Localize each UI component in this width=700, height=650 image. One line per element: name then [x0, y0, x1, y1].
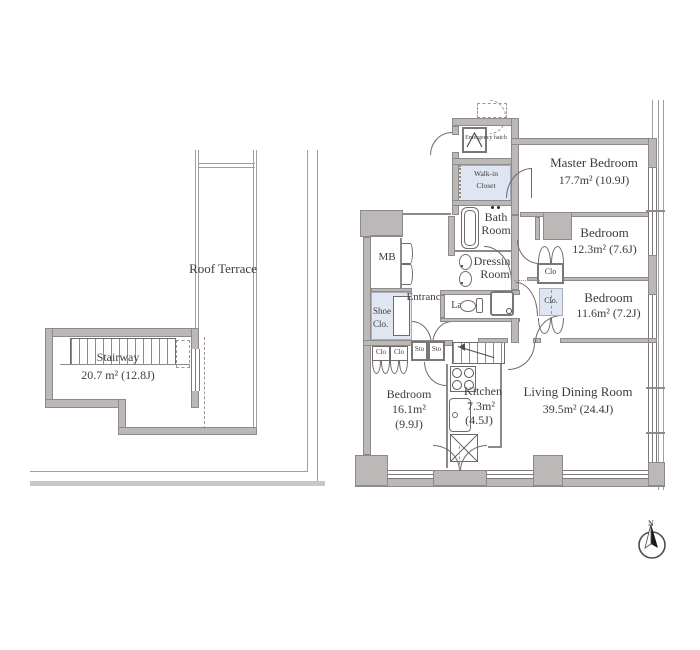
- wall-segment: [440, 295, 445, 318]
- wall-segment: [448, 216, 455, 256]
- window: [648, 212, 657, 255]
- window-tick: [646, 387, 665, 389]
- shoe-closet-label: Clo.: [373, 320, 399, 330]
- wall-segment: [191, 390, 199, 408]
- parcel-boundary-thick: [30, 481, 325, 486]
- overhang-dashed-line: [204, 337, 205, 429]
- pillar: [533, 455, 563, 486]
- walk-in-closet-label: Closet: [461, 182, 511, 190]
- stairway-label: Stairway: [58, 351, 178, 364]
- terrace-rail: [198, 150, 199, 330]
- closet-label: Clo: [372, 349, 390, 357]
- shower-dot: [491, 206, 494, 209]
- floor-plan: Roof Terrace Stairway 20.7 m² (12.8J) Em…: [0, 0, 700, 650]
- door-arc-corridor: [516, 282, 538, 316]
- mb-bifold-door: [402, 243, 413, 264]
- wall-segment: [452, 200, 512, 206]
- window: [648, 343, 657, 462]
- stairway-dashed-landing: [176, 340, 190, 368]
- stairway-area-label: 20.7 m² (12.8J): [45, 369, 191, 382]
- mb-bifold-door: [402, 264, 413, 285]
- faucet-dot: [461, 282, 463, 284]
- bedroom4-label: Bedroom: [359, 388, 459, 401]
- compass: N: [630, 516, 674, 568]
- bedroom4-area-label: (9.9J): [359, 418, 459, 431]
- wall-segment: [511, 138, 657, 145]
- wall-segment: [45, 328, 198, 337]
- terrace-rail: [198, 167, 255, 168]
- window-tick: [646, 432, 665, 434]
- wall-segment: [648, 138, 657, 168]
- wall-segment: [440, 318, 520, 322]
- parcel-boundary: [652, 100, 653, 138]
- closet-bifold-arc: [372, 361, 381, 374]
- terrace-rail: [253, 150, 254, 428]
- wall-segment: [455, 250, 511, 252]
- emergency-hatch-label: Emergency hatch: [454, 135, 518, 142]
- wall-segment: [511, 215, 519, 290]
- window: [487, 470, 533, 479]
- storage-label: Sto: [411, 346, 428, 354]
- window: [648, 168, 657, 212]
- stairs-arrowhead: [455, 343, 465, 351]
- compass-needle-dark: [651, 524, 658, 548]
- wall-segment: [648, 255, 657, 295]
- pillar: [355, 455, 388, 486]
- wall-segment: [191, 328, 199, 350]
- shower-dot: [497, 206, 500, 209]
- closet-bifold-arc: [399, 361, 408, 374]
- terrace-rail: [256, 150, 257, 428]
- roof-terrace-label: Roof Terrace: [163, 262, 283, 276]
- door-arc-hatch-room: [430, 132, 452, 155]
- wall-segment: [403, 213, 451, 215]
- storage-label: Sto: [428, 346, 445, 354]
- wall-segment: [370, 235, 402, 237]
- corridor-dotted-line: [514, 280, 540, 281]
- window: [648, 295, 657, 338]
- wall-base-strip: [355, 478, 665, 487]
- parcel-boundary: [307, 150, 308, 471]
- wall-segment: [511, 318, 519, 343]
- terrace-rail: [198, 163, 255, 164]
- wall-segment: [45, 399, 126, 408]
- closet-label-bedroom2: Clo: [537, 268, 564, 277]
- burner: [452, 368, 462, 378]
- wall-segment: [118, 427, 257, 435]
- wall-segment: [452, 158, 512, 165]
- wall-segment: [535, 217, 540, 240]
- wall-segment: [452, 118, 518, 126]
- living-label: Living Dining Room: [488, 385, 668, 399]
- bedroom4-area-label: 16.1m²: [359, 403, 459, 416]
- window: [563, 470, 648, 479]
- utility-dot: [506, 308, 512, 314]
- wall-segment: [520, 212, 657, 217]
- shoe-closet-label: Shoe: [373, 307, 399, 317]
- pillar: [360, 210, 403, 237]
- wall-segment: [648, 462, 665, 486]
- closet-label: Clo: [390, 349, 408, 357]
- wall-segment: [488, 446, 502, 448]
- door-arc-living: [508, 343, 535, 370]
- walk-in-closet-label: Walk-in: [461, 170, 511, 178]
- toilet: [460, 300, 476, 312]
- burner: [464, 368, 474, 378]
- wall-segment: [452, 126, 459, 135]
- living-area-label: 39.5m² (24.4J): [488, 403, 668, 416]
- door-arc-bedroom4: [424, 362, 446, 386]
- window: [388, 470, 435, 479]
- closet-label-bedroom3: Clo.: [539, 297, 563, 306]
- terrace-rail: [195, 150, 196, 330]
- wall-segment: [433, 470, 487, 486]
- closet-bifold-arc: [390, 361, 399, 374]
- parcel-boundary: [317, 150, 318, 482]
- wall-segment: [560, 338, 656, 343]
- toilet-tank: [476, 298, 483, 313]
- window-tick: [646, 210, 665, 212]
- closet-bifold-arc: [381, 361, 390, 374]
- stairway-window: [191, 349, 200, 391]
- wall-segment: [478, 338, 508, 343]
- wall-segment: [45, 328, 53, 405]
- parcel-boundary: [30, 471, 308, 472]
- faucet-dot: [461, 265, 463, 267]
- balcony-door-centerline: [459, 446, 460, 470]
